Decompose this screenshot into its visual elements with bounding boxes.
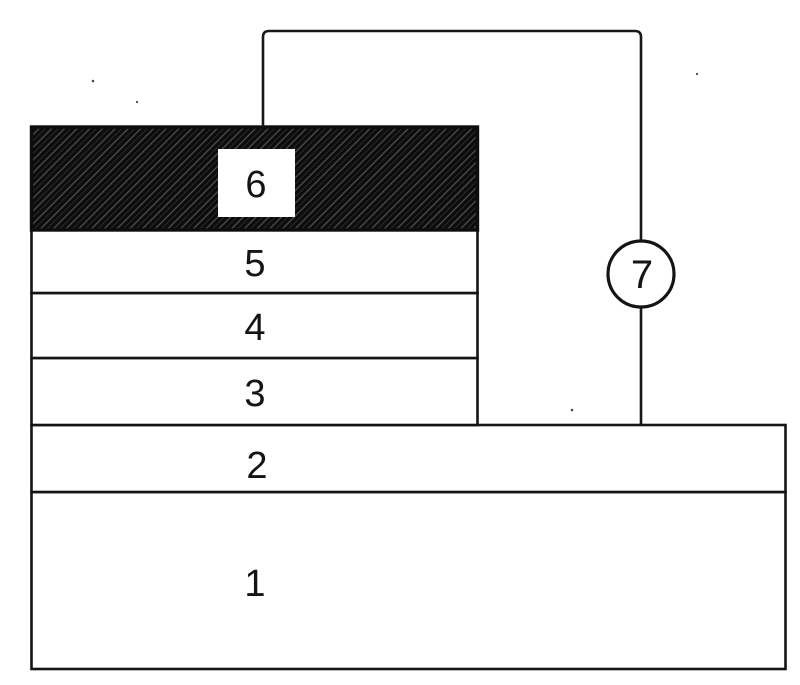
layer-2-label: 2 — [246, 445, 267, 487]
layer-4-label: 4 — [244, 307, 265, 349]
layer-1-rect — [32, 492, 786, 669]
layer-6-label: 6 — [245, 164, 266, 206]
device-diagram-svg: 1 2 3 4 5 6 7 — [0, 0, 800, 685]
layer-2-rect — [32, 425, 786, 492]
layer-5-label: 5 — [244, 243, 265, 285]
layer-3-label: 3 — [244, 373, 265, 415]
scan-speck — [571, 409, 574, 412]
scan-speck — [696, 73, 698, 75]
scan-speck — [136, 101, 138, 103]
scan-speck — [92, 80, 95, 83]
circuit-node-7-label: 7 — [631, 253, 653, 297]
layer-1-label: 1 — [244, 563, 265, 605]
figure-canvas: 1 2 3 4 5 6 7 — [0, 0, 800, 685]
